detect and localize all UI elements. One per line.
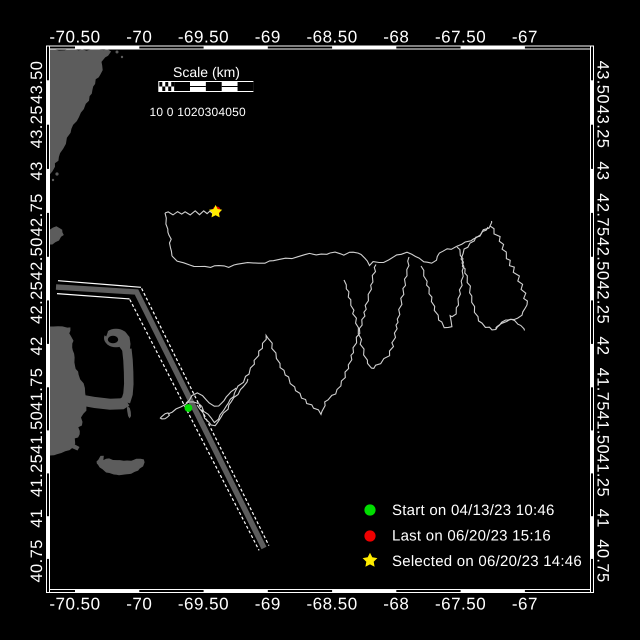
- svg-text:42.75: 42.75: [594, 193, 612, 236]
- svg-text:-68.50: -68.50: [306, 28, 357, 47]
- svg-text:-70: -70: [126, 28, 152, 47]
- svg-text:10 0 1020304050: 10 0 1020304050: [150, 105, 247, 119]
- svg-text:-68.50: -68.50: [306, 595, 357, 614]
- svg-text:-69: -69: [255, 28, 281, 47]
- svg-text:-67.50: -67.50: [435, 28, 486, 47]
- svg-text:40.75: 40.75: [594, 539, 612, 582]
- svg-text:-69.50: -69.50: [178, 595, 229, 614]
- svg-text:41.25: 41.25: [28, 454, 46, 497]
- svg-text:-70: -70: [126, 595, 152, 614]
- svg-text:-67: -67: [512, 595, 538, 614]
- svg-text:41.50: 41.50: [594, 411, 612, 454]
- svg-text:40.75: 40.75: [28, 539, 46, 582]
- svg-text:-67.50: -67.50: [435, 595, 486, 614]
- svg-text:Start on 04/13/23 10:46: Start on 04/13/23 10:46: [392, 502, 555, 519]
- svg-text:-67: -67: [512, 28, 538, 47]
- svg-text:41.25: 41.25: [594, 454, 612, 497]
- svg-text:43: 43: [28, 161, 46, 180]
- svg-text:41.75: 41.75: [28, 368, 46, 411]
- svg-text:43: 43: [594, 161, 612, 180]
- svg-text:41.50: 41.50: [28, 411, 46, 454]
- svg-text:43.25: 43.25: [594, 105, 612, 148]
- svg-text:-70.50: -70.50: [49, 595, 100, 614]
- svg-text:-68: -68: [383, 28, 409, 47]
- svg-text:42.75: 42.75: [28, 193, 46, 236]
- svg-text:42.50: 42.50: [28, 237, 46, 280]
- svg-text:42.25: 42.25: [594, 281, 612, 324]
- svg-text:42.25: 42.25: [28, 281, 46, 324]
- svg-text:42: 42: [28, 336, 46, 355]
- svg-text:43.25: 43.25: [28, 105, 46, 148]
- svg-text:41: 41: [28, 509, 46, 528]
- svg-text:Selected on 06/20/23 14:46: Selected on 06/20/23 14:46: [392, 553, 582, 570]
- svg-text:43.50: 43.50: [594, 61, 612, 104]
- svg-text:42: 42: [594, 336, 612, 355]
- svg-text:-69: -69: [255, 595, 281, 614]
- svg-text:Last on 06/20/23 15:16: Last on 06/20/23 15:16: [392, 528, 551, 545]
- svg-text:-69.50: -69.50: [178, 28, 229, 47]
- svg-text:41: 41: [594, 509, 612, 528]
- svg-text:Scale (km): Scale (km): [173, 64, 240, 80]
- svg-text:42.50: 42.50: [594, 237, 612, 280]
- svg-text:41.75: 41.75: [594, 368, 612, 411]
- svg-text:43.50: 43.50: [28, 61, 46, 104]
- svg-text:-68: -68: [383, 595, 409, 614]
- svg-text:-70.50: -70.50: [49, 28, 100, 47]
